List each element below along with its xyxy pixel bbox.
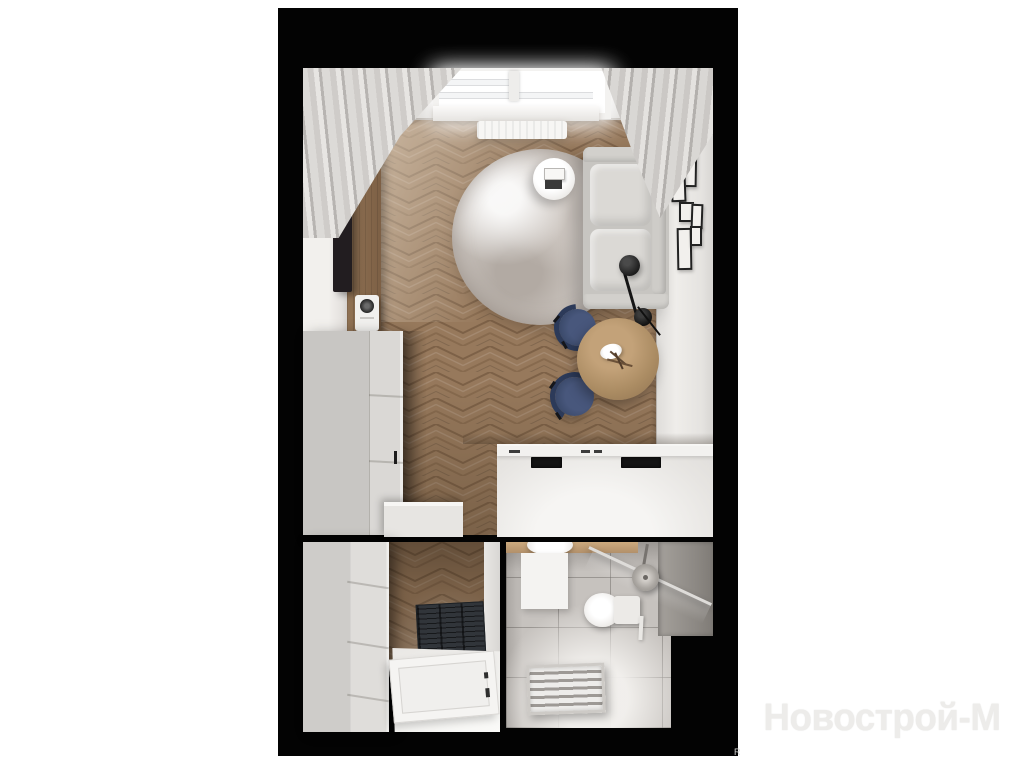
hallway-bathroom-wall: [484, 542, 500, 662]
shower-head: [632, 564, 659, 591]
wardrobe-seam: [369, 460, 403, 464]
watermark: Новострой-М: [764, 697, 1001, 740]
counter-cast-shadow: [463, 433, 713, 444]
intercom-label-line: [360, 317, 374, 319]
wardrobe-seam: [347, 641, 389, 650]
wardrobe-seam: [347, 694, 389, 703]
bath-mat: [521, 553, 568, 609]
wardrobe-seam: [369, 394, 403, 398]
intercom-knob: [360, 299, 374, 313]
kitchen-counter: [497, 444, 713, 537]
shower-head-center: [643, 575, 648, 580]
book-stack: [545, 180, 562, 189]
drawer-handle: [509, 450, 520, 453]
partition-pony-wall: [384, 502, 463, 537]
book-stack: [544, 168, 565, 180]
cooktop: [531, 457, 562, 468]
counter-top-edge: [497, 446, 713, 456]
radiator: [477, 121, 567, 139]
wardrobe-handle: [394, 451, 397, 464]
dining-table: [577, 318, 659, 400]
floorplan-render-page: Новострой-М R: [0, 0, 1017, 768]
towel-radiator: [526, 663, 606, 716]
entrance-door: [388, 651, 499, 724]
door-panel: [398, 660, 490, 713]
glazing-bar: [519, 92, 593, 99]
drawer-handle: [581, 450, 590, 453]
sofa-armrest: [583, 294, 669, 309]
door-hinge: [485, 688, 490, 697]
toilet-tank: [614, 596, 640, 624]
picture-frame: [690, 226, 702, 246]
window-sill: [433, 106, 599, 121]
wardrobe-seam: [369, 331, 370, 535]
glazing-bar: [439, 92, 509, 99]
kitchen-sink: [621, 457, 661, 468]
floor-lamp-shade: [619, 255, 640, 276]
registered-mark: R: [734, 747, 741, 757]
entry-wardrobe: [303, 542, 389, 732]
side-table: [533, 158, 575, 200]
wardrobe-seam: [347, 581, 389, 590]
door-handle: [484, 672, 489, 678]
intercom-socket: [355, 295, 379, 331]
window-mullion: [509, 71, 519, 101]
drawer-handle: [594, 450, 602, 453]
